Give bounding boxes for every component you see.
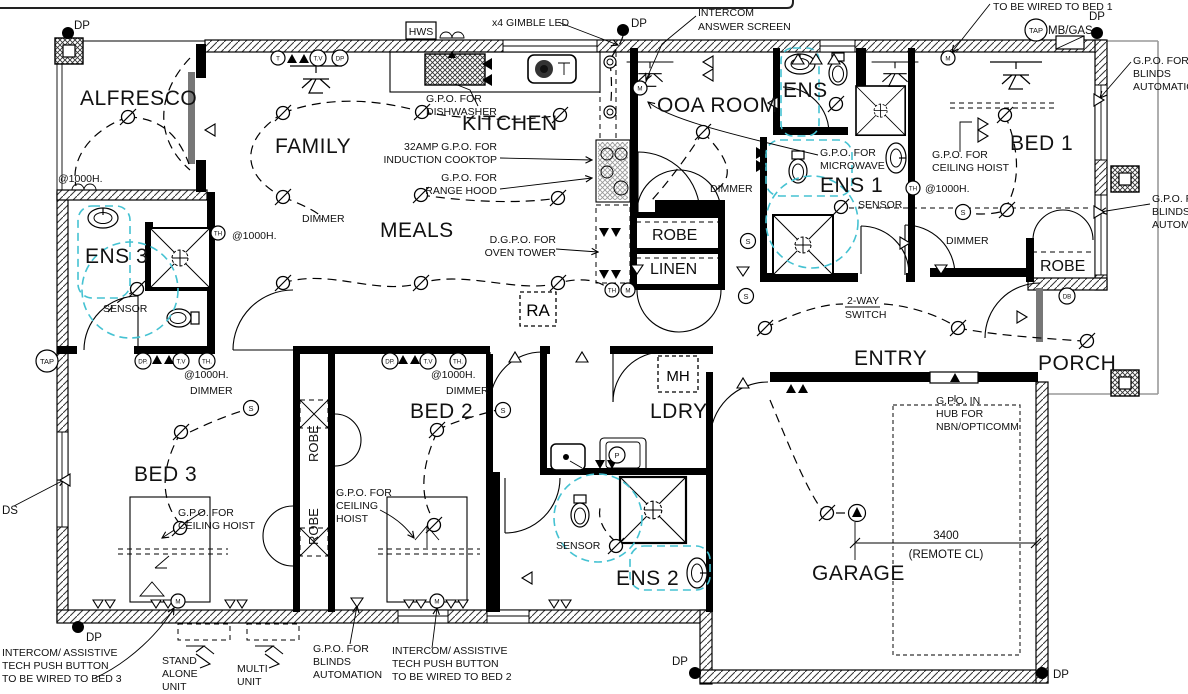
room-label-linen: LINEN — [650, 261, 697, 278]
light-icon — [275, 275, 291, 291]
fixtures — [72, 22, 1092, 668]
downpipe-icon — [617, 24, 629, 36]
svg-text:TAP: TAP — [40, 357, 54, 366]
double-gpo-icon — [599, 270, 621, 279]
intercom-symbol: M — [941, 51, 955, 65]
window — [820, 40, 855, 52]
dp-label: DP — [672, 656, 688, 668]
room-label-bed2: BED 2 — [410, 400, 473, 423]
gpo-blinds-label: BLINDS — [1152, 206, 1188, 218]
room-label-porch: PORCH — [1038, 352, 1116, 375]
room-label-family: FAMILY — [275, 135, 351, 158]
svg-text:M: M — [175, 599, 180, 606]
window — [503, 40, 597, 52]
dimension-note: (REMOTE CL) — [909, 549, 984, 561]
roof-eave-lines — [57, 41, 1158, 394]
height-label: @1000H. — [232, 230, 277, 242]
thermostat-symbol: TH — [605, 283, 619, 297]
light-icon — [550, 275, 566, 291]
switch-symbol: S — [739, 289, 754, 304]
tv-bracket — [290, 66, 342, 93]
stand-alone-label: STAND — [162, 655, 197, 667]
svg-text:P: P — [614, 451, 619, 460]
light-icon — [828, 96, 844, 112]
multi-unit-label: UNIT — [237, 676, 262, 688]
kitchen-sink — [528, 55, 576, 83]
switch-symbol: S — [956, 205, 971, 220]
nbn-label: G.P.O. IN — [936, 395, 980, 407]
light-icon — [275, 189, 291, 205]
room-label-ens3: ENS 3 — [85, 245, 148, 268]
wall-point-icon — [1017, 311, 1027, 323]
svg-text:DB: DB — [1063, 294, 1072, 301]
dgpo-oven-label: D.G.P.O. FOR — [490, 234, 557, 246]
shower — [856, 86, 905, 135]
svg-text:TAP: TAP — [1029, 26, 1043, 35]
double-gpo-icon — [549, 600, 571, 608]
two-way-switch-label: SWITCH — [845, 309, 886, 321]
intercom-bed2-label: TECH PUSH BUTTON — [392, 658, 499, 670]
gpo-blinds-label: G.P.O. FOR — [1133, 55, 1188, 67]
gpo-hoist-label: HOIST — [336, 513, 369, 525]
intercom-screen-label: INTERCOM — [698, 7, 754, 19]
height-label: @1000H. — [431, 369, 476, 381]
stand-alone-label: UNIT — [162, 681, 187, 693]
downpipe-icon — [689, 667, 701, 679]
intercom-bed3-label: TECH PUSH BUTTON — [2, 660, 109, 672]
data-point-symbol: DP. — [135, 353, 151, 369]
svg-text:T.V: T.V — [314, 56, 324, 63]
gpo-blinds-label: G.P.O. FOR — [1152, 193, 1188, 205]
data-point-symbol: DP — [332, 50, 348, 66]
bed1-dashes — [950, 103, 1058, 108]
light-icon — [833, 199, 849, 215]
svg-text:TH: TH — [214, 231, 222, 238]
basin — [886, 143, 906, 173]
dp-label: DP — [1053, 669, 1069, 681]
dimmer-label: DIMMER — [946, 235, 989, 247]
svg-text:TH.: TH. — [453, 359, 463, 366]
mh-label: MH — [666, 368, 689, 385]
dimmer-label: DIMMER — [302, 213, 345, 225]
cooktop — [596, 140, 630, 202]
wall-point-icon — [737, 267, 749, 276]
dp-label: DP — [631, 18, 647, 30]
dimension-value: 3400 — [933, 530, 959, 542]
intercom-multi-unit — [247, 624, 299, 668]
double-gpo-icon — [599, 228, 621, 237]
room-label-robe: ROBE — [306, 508, 321, 545]
gpo-dishwasher-label: G.P.O. FOR — [426, 93, 482, 105]
toilet — [571, 495, 589, 527]
intercom-symbol: M — [171, 594, 185, 608]
intercom-bed2-label: TO BE WIRED TO BED 2 — [392, 671, 512, 683]
light-icon — [757, 320, 773, 336]
room-label-garage: GARAGE — [812, 562, 905, 585]
dimmer-label: DIMMER — [446, 385, 489, 397]
light-icon — [819, 505, 835, 521]
room-label-robe: ROBE — [652, 227, 697, 244]
wall-point-icon — [205, 124, 215, 136]
tv-symbol: T.V — [420, 353, 436, 369]
mb-gas-label: MB/GAS — [1048, 25, 1093, 37]
gimble-led-icon — [604, 56, 616, 68]
nbn-label: NBN/OPTICOMM — [936, 421, 1019, 433]
gpo-blinds-label: BLINDS — [1133, 68, 1171, 80]
svg-text:DP.: DP. — [138, 359, 148, 366]
title-block-corner — [0, 0, 793, 8]
svg-text:S: S — [743, 292, 748, 301]
svg-text:T: T — [276, 56, 280, 63]
thermostat-symbol: TH. — [450, 353, 466, 369]
sensor-label: SENSOR — [556, 540, 601, 552]
tap-symbol: TAP — [1025, 19, 1047, 41]
svg-text:DP: DP — [336, 56, 345, 63]
svg-text:S: S — [500, 406, 505, 415]
room-label-bed1: BED 1 — [1010, 132, 1073, 155]
wall-point-icon — [703, 69, 713, 81]
intercom-bed3-label: INTERCOM/ ASSISTIVE — [2, 647, 118, 659]
intercom-screen-label: ANSWER SCREEN — [698, 21, 791, 33]
double-gpo-icon — [786, 384, 808, 393]
gpo-cooktop-label: 32AMP G.P.O. FOR — [404, 141, 497, 153]
double-gpo-icon — [152, 355, 174, 364]
basin — [88, 208, 118, 228]
tv-symbol: T.V — [310, 50, 326, 66]
toilet — [167, 309, 199, 327]
room-label-ldry: LDRY — [650, 400, 708, 423]
room-label-ens1: ENS 1 — [820, 174, 883, 197]
thermostat-symbol: TH. — [199, 353, 215, 369]
svg-text:S: S — [248, 404, 253, 413]
double-gpo-icon — [151, 600, 173, 608]
wall-point-icon — [978, 130, 988, 142]
double-gpo-icon — [93, 600, 115, 608]
distribution-board-symbol: DB — [1059, 288, 1075, 304]
window — [398, 610, 448, 623]
tv-bracket — [990, 62, 1042, 89]
light-icon — [413, 275, 429, 291]
downpipe-icon — [72, 621, 84, 633]
exhaust-fan-icon — [849, 505, 866, 522]
light-icon — [950, 320, 966, 336]
room-label-entry: ENTRY — [854, 347, 927, 370]
svg-text:DP.: DP. — [385, 359, 395, 366]
switch-symbol: S — [496, 403, 511, 418]
double-gpo-icon — [287, 54, 309, 63]
height-label: @1000H. — [184, 369, 229, 381]
hws-label: HWS — [409, 26, 434, 38]
garage-dimension: 3400 (REMOTE CL) — [850, 522, 1041, 561]
gpo-cooktop-label: INDUCTION COOKTOP — [383, 154, 497, 166]
post — [1111, 166, 1139, 192]
multi-unit-label: MULTI — [237, 663, 268, 675]
dgpo-oven-label: OVEN TOWER — [485, 247, 557, 259]
gpo-microwave-label: MICROWAVE — [820, 160, 885, 172]
room-label-alfresco: ALFRESCO — [80, 87, 197, 110]
dp-label: DP — [86, 632, 102, 644]
gpo-hoist-label: CEILING HOIST — [178, 520, 256, 532]
intercom-symbol: M — [621, 283, 635, 297]
downpipe-icon — [62, 27, 74, 39]
double-gpo-icon — [404, 600, 426, 608]
ceiling-point-icon — [737, 378, 749, 388]
shower — [620, 477, 686, 543]
downpipe-icon — [1036, 667, 1048, 679]
room-label-robe: ROBE — [1040, 258, 1085, 275]
gpo-blinds-label: AUTOMATION — [1133, 81, 1188, 93]
room-label-ens2: ENS 2 — [616, 567, 679, 590]
window — [1095, 195, 1107, 275]
dishwasher — [425, 51, 485, 85]
gpo-dishwasher-label: DISHWASHER — [426, 106, 497, 118]
intercom-bed3-label: TO BE WIRED TO BED 3 — [2, 673, 122, 685]
gpo-blinds-label: AUTOMATION — [313, 669, 382, 681]
svg-text:M: M — [434, 599, 439, 606]
svg-text:TH: TH — [608, 288, 616, 295]
shower — [150, 228, 210, 288]
ceiling-point-icon — [576, 352, 588, 362]
floor-plan-drawing: T T.V DP DP. T.V TH. DP. T.V TH. TH TH T… — [0, 0, 1188, 694]
svg-text:S: S — [745, 237, 750, 246]
mb-gas-meter — [1056, 36, 1084, 49]
svg-text:M: M — [637, 86, 642, 93]
switch-symbol: S — [244, 401, 259, 416]
wall-point-icon — [703, 56, 713, 68]
tv-symbol: T.V — [173, 353, 189, 369]
light-icon — [275, 105, 291, 121]
room-label-meals: MEALS — [380, 219, 454, 242]
thermostat-symbol: TH — [906, 181, 920, 195]
gpo-rangehood-label: RANGE HOOD — [425, 185, 497, 197]
stand-alone-label: ALONE — [162, 668, 198, 680]
gimble-led-icon — [604, 106, 616, 118]
light-icon — [1079, 333, 1095, 349]
height-label: @1000H. — [925, 183, 970, 195]
gpo-microwave-label: G.P.O. FOR — [820, 147, 876, 159]
gpo-hoist-label: CEILING HOIST — [932, 162, 1010, 174]
gpo-hoist-label: CEILING — [336, 500, 378, 512]
light-icon — [997, 107, 1013, 123]
light-icon — [999, 202, 1015, 218]
gpo-blinds-label: AUTOMATION — [1152, 219, 1188, 231]
phone-symbol: T — [271, 51, 285, 65]
room-label-bed3: BED 3 — [134, 463, 197, 486]
height-label: @1000H. — [58, 173, 103, 185]
intercom-symbol: M — [430, 594, 444, 608]
gimble-led-label: x4 GIMBLE LED — [492, 17, 569, 29]
basin — [687, 558, 707, 588]
ds-label: DS — [2, 505, 18, 517]
tap-symbol: TAP — [36, 350, 58, 372]
bed-hoist-rect — [378, 497, 480, 602]
intercom-symbol: M — [633, 81, 647, 95]
double-gpo-icon — [398, 355, 420, 364]
light-icon — [550, 190, 566, 206]
svg-text:M: M — [945, 56, 950, 63]
blinds-gpo-icon — [351, 598, 363, 607]
dimmer-label: DIMMER — [190, 385, 233, 397]
room-label-ens: ENS — [783, 79, 828, 102]
svg-text:T.V: T.V — [177, 359, 187, 366]
floor-plan-page: T T.V DP DP. T.V TH. DP. T.V TH. TH TH T… — [0, 0, 1188, 694]
dimmer-label: DIMMER — [710, 183, 753, 195]
laundry-trough — [551, 444, 585, 470]
gpo-blinds-label: G.P.O. FOR — [313, 643, 369, 655]
double-gpo-icon — [225, 600, 247, 608]
intercom-bed2-label: INTERCOM/ ASSISTIVE — [392, 645, 508, 657]
light-icon — [429, 422, 445, 438]
room-label-ooa: OOA ROOM — [657, 94, 778, 117]
svg-text:T.V: T.V — [424, 359, 434, 366]
gpo-hoist-label: G.P.O. FOR — [932, 149, 988, 161]
electrical-symbols — [60, 24, 1188, 694]
ra-label: RA — [526, 301, 550, 320]
gpo-hoist-label: G.P.O. FOR — [336, 487, 392, 499]
sensor-label: SENSOR — [858, 199, 903, 211]
thermostat-symbol: TH — [211, 226, 225, 240]
post — [55, 38, 83, 64]
dp-label: DP — [1089, 11, 1105, 23]
gpo-hoist-label: G.P.O. FOR — [178, 507, 234, 519]
light-icon — [173, 424, 189, 440]
nbn-label: HUB FOR — [936, 408, 984, 420]
switch-symbol: S — [741, 234, 756, 249]
svg-text:TH: TH — [909, 186, 917, 193]
wall-point-icon — [522, 572, 532, 584]
sensor-label: SENSOR — [103, 303, 148, 315]
wall-point-icon — [978, 118, 988, 130]
two-way-switch-label: 2-WAY — [847, 295, 879, 307]
data-point-symbol: DP. — [382, 353, 398, 369]
light-icon — [426, 517, 442, 533]
pump-symbol: P — [609, 447, 625, 463]
light-icon — [120, 109, 136, 125]
light-icon — [608, 538, 624, 554]
svg-text:TH.: TH. — [202, 359, 212, 366]
room-label-robe: ROBE — [306, 425, 321, 462]
svg-text:M: M — [625, 288, 630, 295]
dp-label: DP — [74, 20, 90, 32]
double-gpo-icon — [446, 600, 468, 608]
light-icon — [129, 281, 145, 297]
svg-text:S: S — [960, 208, 965, 217]
downpipe-icon — [1091, 27, 1103, 39]
gpo-blinds-label: BLINDS — [313, 656, 351, 668]
gpo-rangehood-label: G.P.O. FOR — [441, 172, 497, 184]
